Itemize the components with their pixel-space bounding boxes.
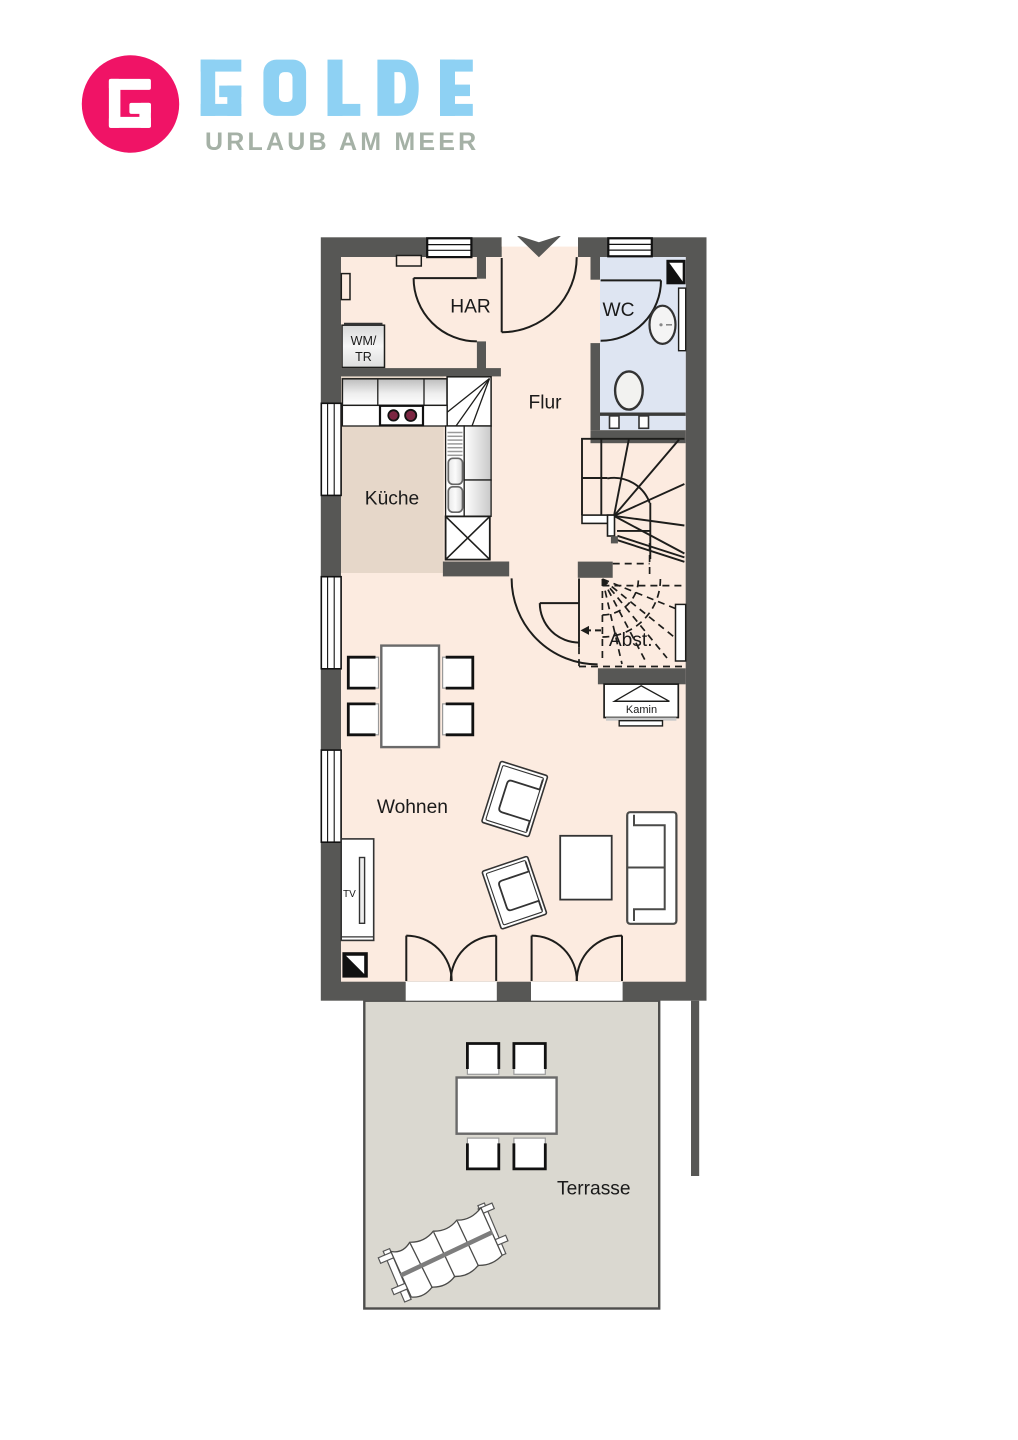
svg-text:WM/: WM/: [351, 334, 377, 348]
svg-text:HAR: HAR: [450, 297, 491, 318]
svg-text:Kamin: Kamin: [626, 704, 657, 716]
svg-text:URLAUB AM MEER: URLAUB AM MEER: [205, 128, 479, 156]
svg-text:WC: WC: [603, 300, 635, 321]
svg-text:Wohnen: Wohnen: [377, 797, 448, 818]
svg-text:Flur: Flur: [528, 393, 562, 414]
svg-text:Terrasse: Terrasse: [557, 1179, 631, 1200]
svg-text:TR: TR: [355, 350, 372, 364]
svg-text:Küche: Küche: [365, 489, 419, 510]
svg-text:Abst.: Abst.: [609, 630, 653, 651]
svg-text:TV: TV: [343, 889, 356, 900]
